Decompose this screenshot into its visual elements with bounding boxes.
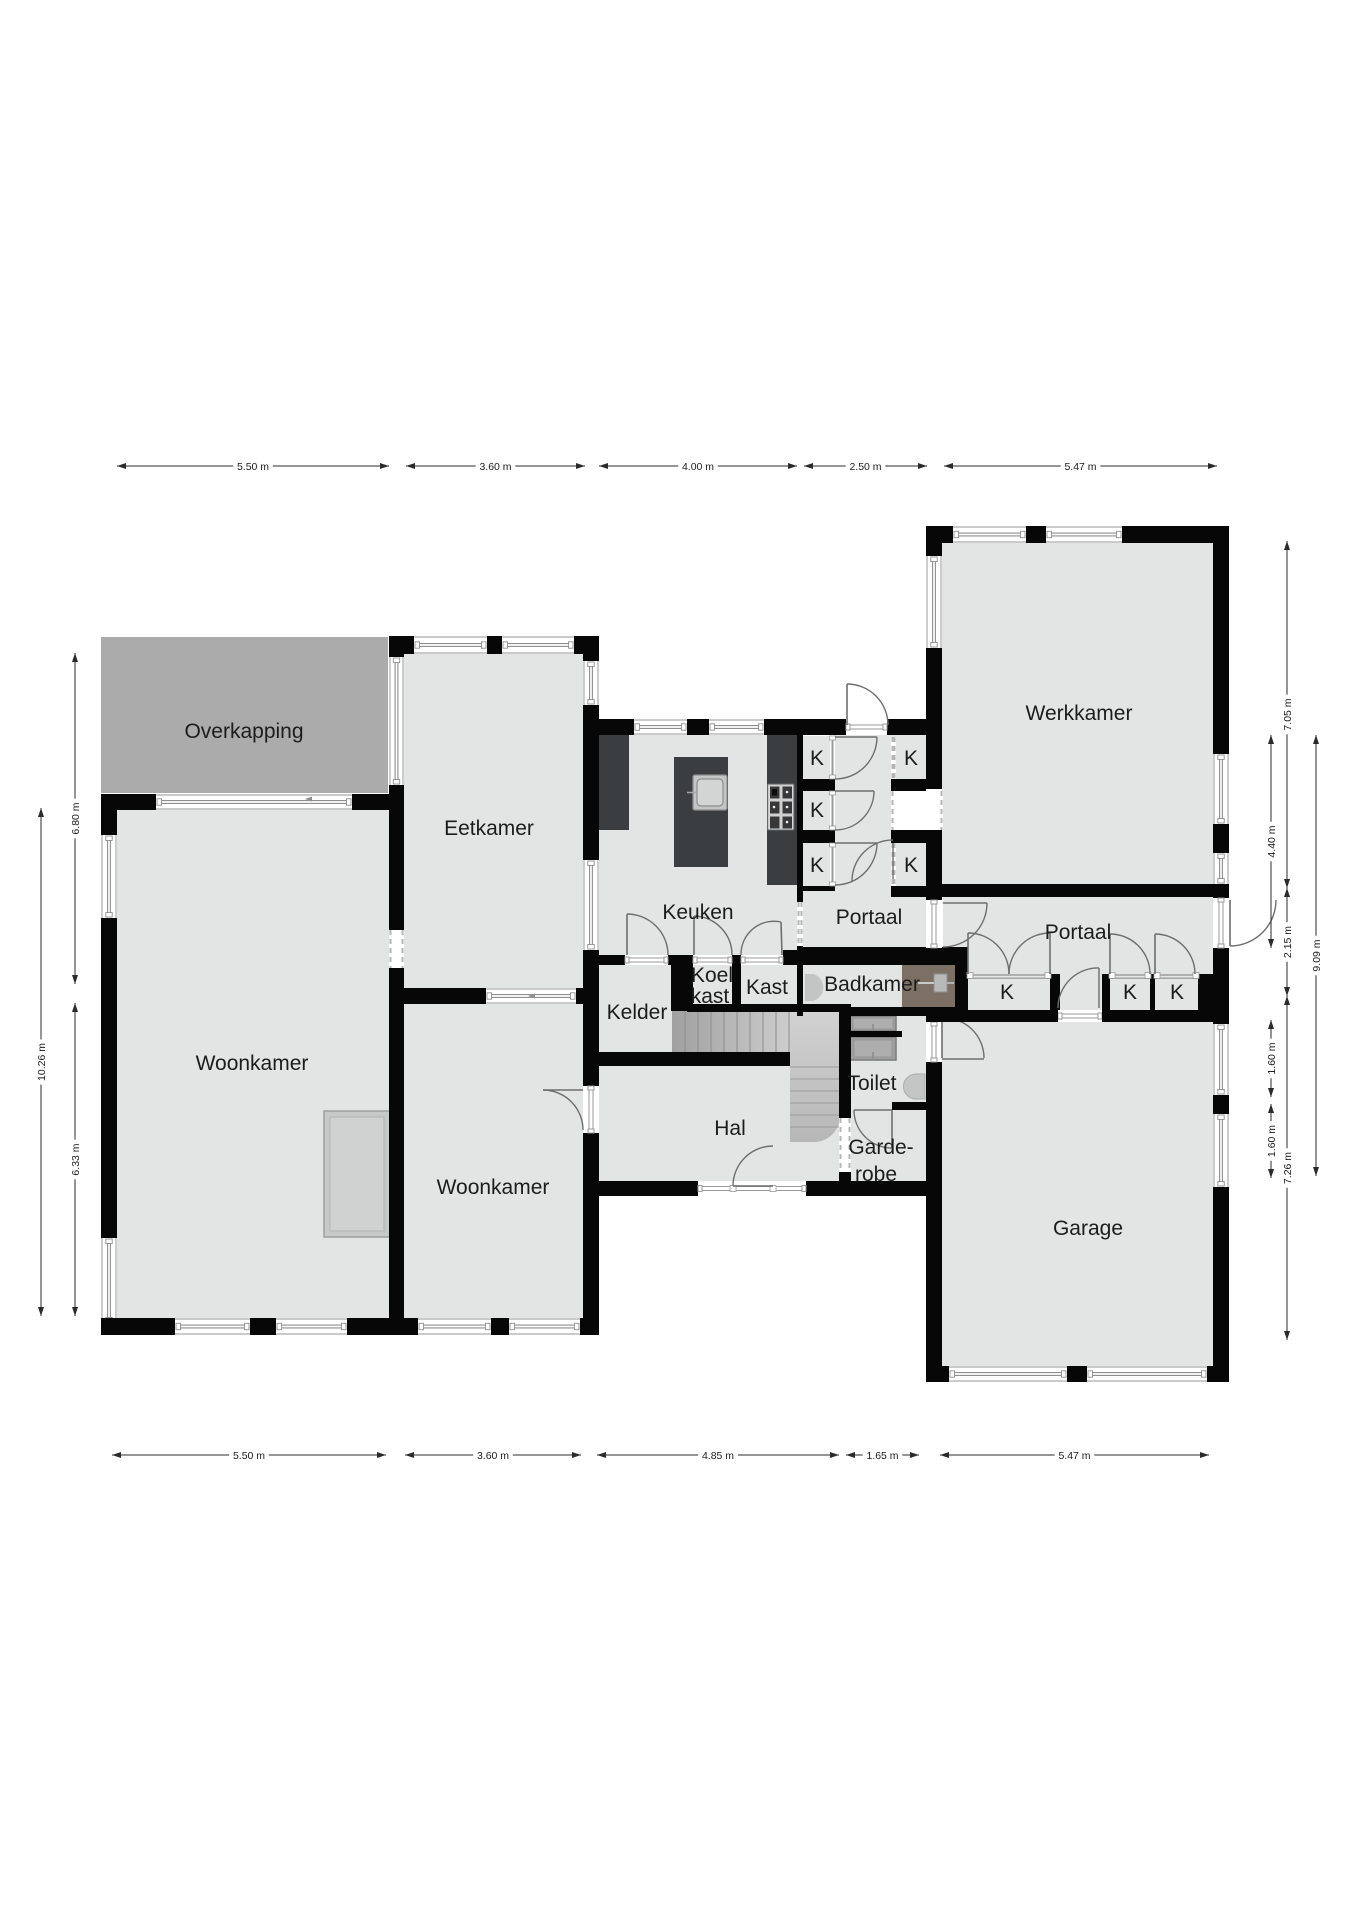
svg-text:6.33 m: 6.33 m: [70, 1143, 82, 1175]
svg-text:K: K: [810, 747, 824, 770]
svg-text:Badkamer: Badkamer: [824, 973, 920, 996]
svg-text:Werkkamer: Werkkamer: [1026, 702, 1133, 725]
svg-text:Kast: Kast: [746, 976, 788, 999]
svg-text:1.65 m: 1.65 m: [866, 1450, 898, 1462]
svg-text:3.60 m: 3.60 m: [477, 1450, 509, 1462]
svg-text:Garage: Garage: [1053, 1217, 1123, 1240]
svg-text:7.05 m: 7.05 m: [1282, 698, 1294, 730]
svg-text:K: K: [810, 854, 824, 877]
svg-text:3.60 m: 3.60 m: [479, 461, 511, 473]
svg-text:Portaal: Portaal: [836, 906, 903, 929]
svg-text:5.50 m: 5.50 m: [237, 461, 269, 473]
svg-text:Overkapping: Overkapping: [184, 720, 303, 743]
svg-text:kast: kast: [691, 985, 730, 1008]
svg-text:Keuken: Keuken: [662, 901, 733, 924]
svg-text:K: K: [904, 747, 918, 770]
svg-text:K: K: [810, 799, 824, 822]
svg-text:5.47 m: 5.47 m: [1064, 461, 1096, 473]
svg-text:Hal: Hal: [714, 1117, 746, 1140]
svg-text:4.00 m: 4.00 m: [682, 461, 714, 473]
svg-text:K: K: [1170, 981, 1184, 1004]
svg-text:Woonkamer: Woonkamer: [196, 1052, 309, 1075]
svg-text:1.60 m: 1.60 m: [1266, 1042, 1278, 1074]
svg-text:2.50 m: 2.50 m: [849, 461, 881, 473]
svg-text:K: K: [1000, 981, 1014, 1004]
svg-text:9.09 m: 9.09 m: [1311, 939, 1323, 971]
svg-text:K: K: [1123, 981, 1137, 1004]
svg-text:Koel: Koel: [691, 964, 733, 987]
svg-text:6.80 m: 6.80 m: [70, 802, 82, 834]
svg-text:10.26 m: 10.26 m: [36, 1043, 48, 1081]
svg-text:5.47 m: 5.47 m: [1058, 1450, 1090, 1462]
svg-text:4.40 m: 4.40 m: [1266, 825, 1278, 857]
svg-text:Eetkamer: Eetkamer: [444, 817, 534, 840]
svg-text:1.60 m: 1.60 m: [1266, 1125, 1278, 1157]
svg-text:Portaal: Portaal: [1045, 921, 1112, 944]
svg-text:robe: robe: [855, 1163, 897, 1186]
svg-text:7.26 m: 7.26 m: [1282, 1152, 1294, 1184]
svg-text:2.15 m: 2.15 m: [1282, 926, 1294, 958]
svg-text:K: K: [904, 854, 918, 877]
svg-text:Toilet: Toilet: [847, 1072, 896, 1095]
svg-text:Garde-: Garde-: [848, 1136, 913, 1159]
svg-text:4.85 m: 4.85 m: [702, 1450, 734, 1462]
svg-text:Woonkamer: Woonkamer: [437, 1176, 550, 1199]
svg-text:Kelder: Kelder: [607, 1001, 668, 1024]
svg-text:5.50 m: 5.50 m: [233, 1450, 265, 1462]
